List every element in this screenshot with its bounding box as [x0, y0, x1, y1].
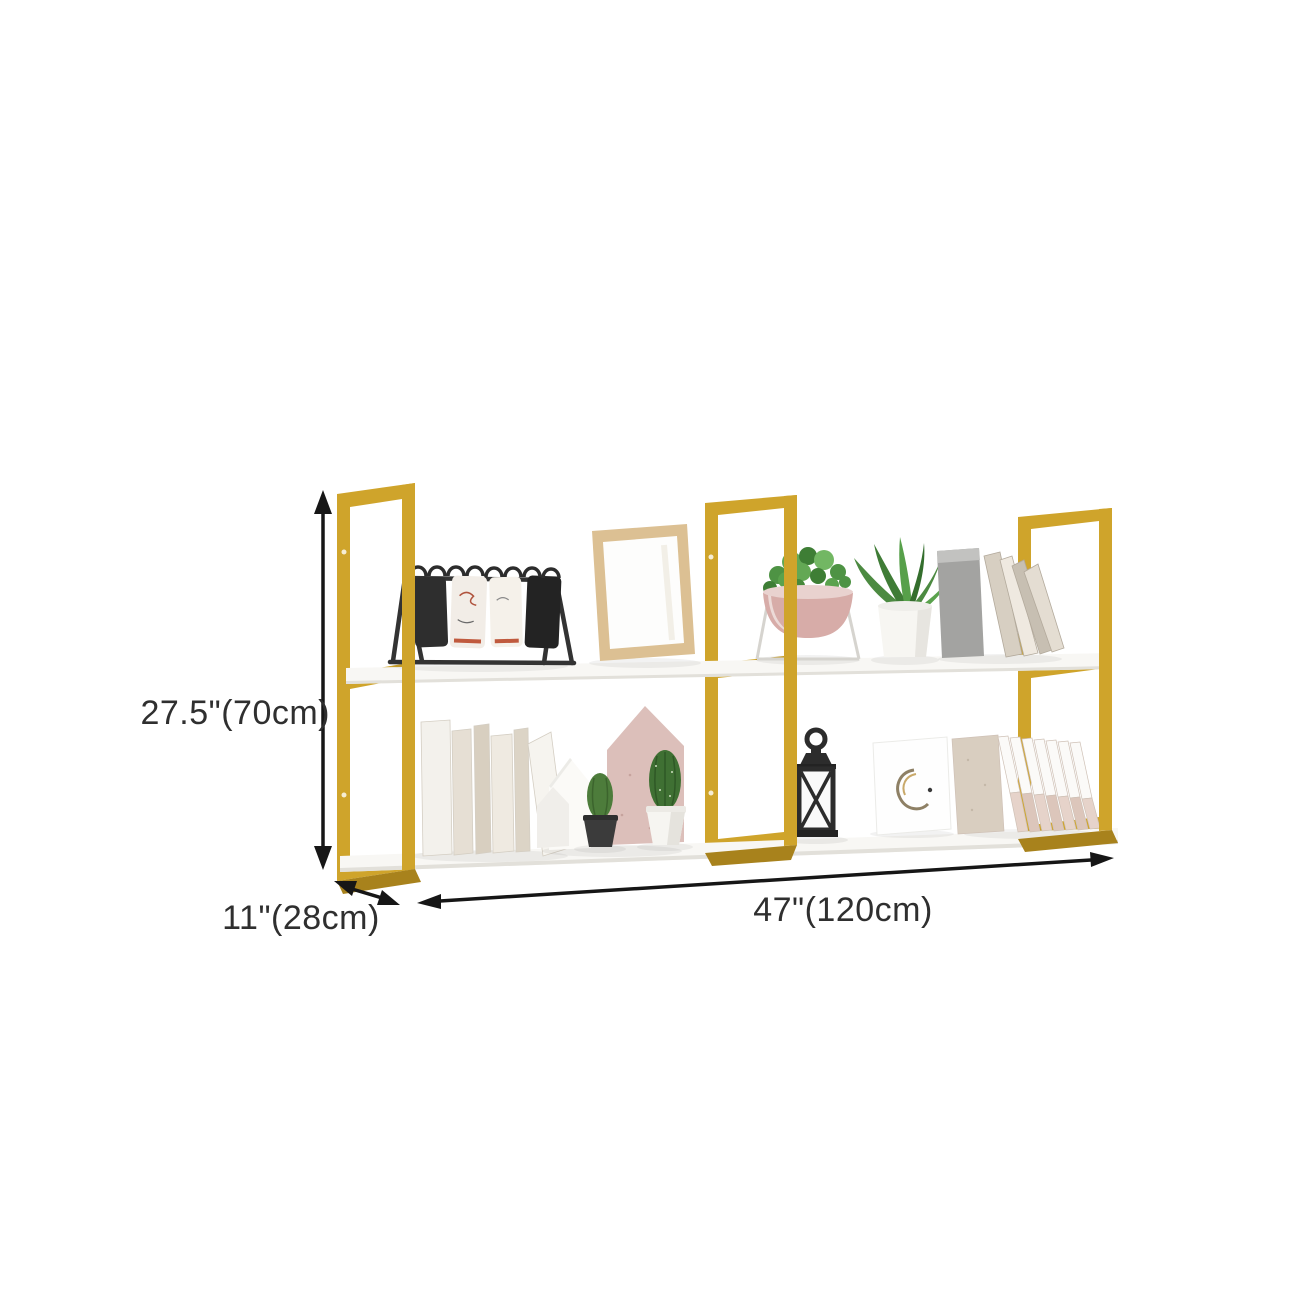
leaning-magazines [984, 552, 1064, 657]
arrowhead-upleft-icon [334, 881, 357, 896]
calendar-card-black [413, 576, 448, 647]
art-canvas [870, 737, 954, 838]
bowl-planter [756, 547, 860, 665]
left-bracket-front-bar [402, 483, 415, 871]
arrowhead-up-icon [314, 490, 332, 514]
height-label: 27.5"(70cm) [140, 694, 330, 732]
top-shelf-decor [390, 524, 1064, 672]
screw-dot [342, 550, 347, 555]
beige-folder [952, 735, 1004, 834]
shelf-diagram: 27.5"(70cm) 11"(28cm) 47"(120cm) [0, 0, 1300, 1300]
right-bracket-front-bar [1099, 508, 1112, 831]
flip-card-calendar [390, 567, 574, 672]
height-dimension: 27.5"(70cm) [140, 490, 332, 870]
product-dimension-image: 27.5"(70cm) 11"(28cm) 47"(120cm) [0, 0, 1300, 1300]
arrowhead-right-icon [1090, 852, 1114, 867]
arrowhead-down-icon [314, 846, 332, 870]
calendar-card-white [450, 575, 487, 648]
wood-picture-frame [589, 524, 701, 668]
calendar-card-white [489, 577, 523, 648]
width-label: 47"(120cm) [753, 891, 933, 929]
screw-dot [342, 793, 347, 798]
depth-label: 11"(28cm) [222, 899, 380, 937]
middle-bracket-front-bar [784, 495, 797, 846]
screw-dot [709, 791, 714, 796]
arrowhead-downright-icon [377, 890, 400, 905]
screw-dot [709, 555, 714, 560]
calendar-card-black [524, 575, 561, 648]
planter-bowl [763, 593, 853, 638]
depth-dimension: 11"(28cm) [222, 881, 400, 937]
arrowhead-left-icon [417, 894, 441, 909]
leaning-file-folders [952, 735, 1100, 839]
